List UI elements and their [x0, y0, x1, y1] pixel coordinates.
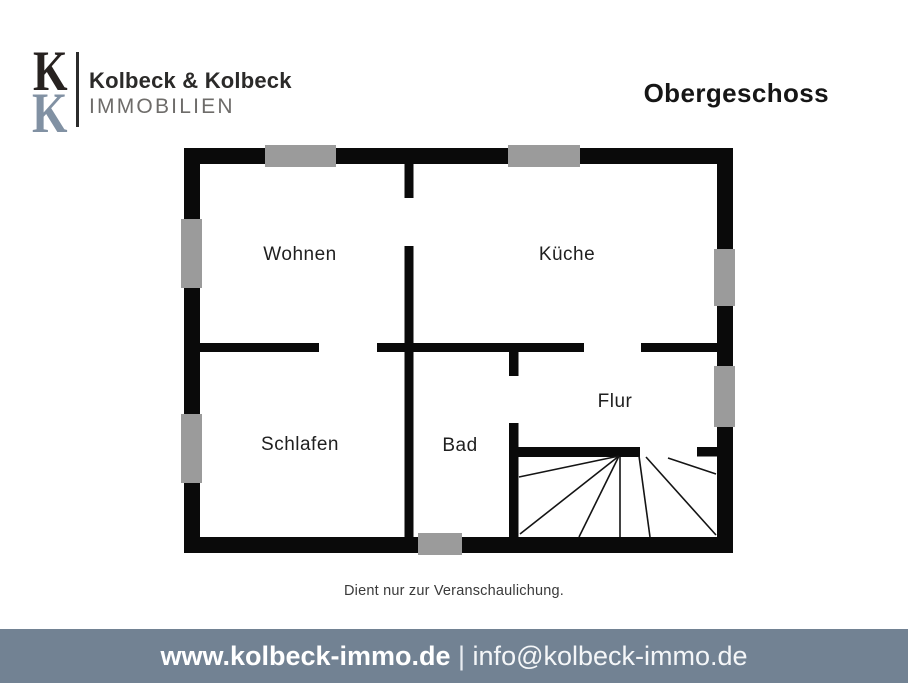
- svg-text:Flur: Flur: [598, 391, 633, 412]
- svg-text:Küche: Küche: [539, 244, 595, 265]
- svg-text:Schlafen: Schlafen: [261, 434, 339, 455]
- svg-text:Wohnen: Wohnen: [263, 244, 336, 265]
- svg-text:Bad: Bad: [442, 435, 477, 456]
